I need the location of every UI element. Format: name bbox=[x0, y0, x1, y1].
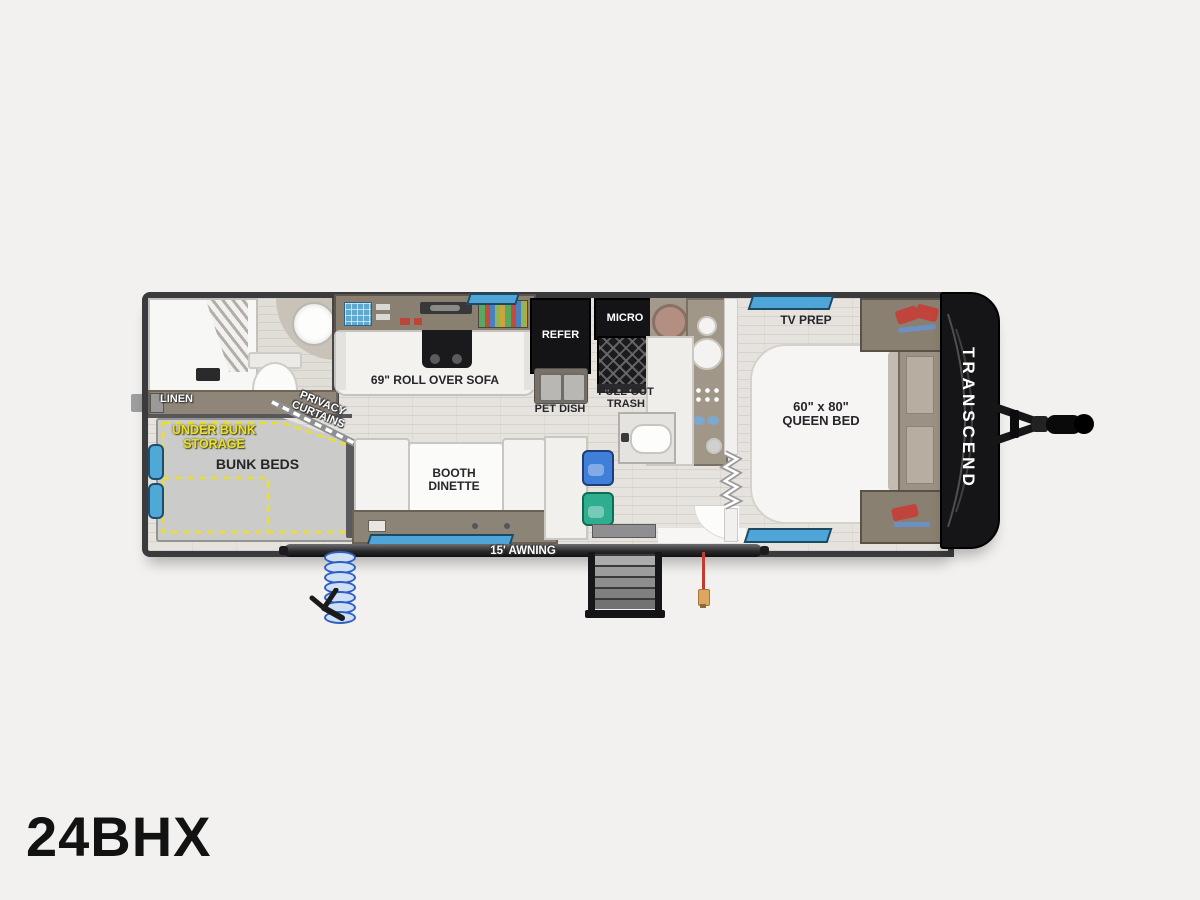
pet-dish bbox=[534, 368, 588, 404]
hose-nozzle bbox=[306, 588, 354, 624]
bunk-beds-label: BUNK BEDS bbox=[200, 457, 315, 472]
booth-dinette-label: BOOTH DINETTE bbox=[410, 467, 498, 493]
micro-label: MICRO bbox=[607, 313, 644, 325]
bunk-ladder bbox=[148, 444, 164, 519]
refrigerator: REFER bbox=[530, 298, 591, 374]
chair-blue bbox=[582, 450, 614, 486]
counter-item-blue bbox=[693, 416, 705, 425]
cup-holder bbox=[452, 354, 462, 364]
sofa-armrest bbox=[336, 332, 346, 390]
cabinet-item-blue bbox=[344, 302, 372, 326]
cabinet-item-red bbox=[414, 318, 422, 325]
shower-fixture bbox=[196, 368, 220, 381]
counter-item-blue bbox=[707, 416, 719, 425]
chair-teal bbox=[582, 492, 614, 526]
power-cord bbox=[702, 552, 705, 590]
step-tread bbox=[595, 576, 655, 587]
model-label: 24BHX bbox=[26, 804, 212, 869]
window-bedroom-top bbox=[748, 295, 835, 310]
entry-steps bbox=[588, 552, 662, 618]
wardrobe-door bbox=[906, 356, 934, 414]
wardrobe-door bbox=[906, 426, 934, 484]
pet-dish-bowl bbox=[562, 373, 586, 402]
dinette-base-detail bbox=[472, 523, 478, 529]
chair-seat bbox=[588, 464, 604, 476]
bedroom-accordion-door bbox=[718, 450, 744, 510]
dinette-base-detail bbox=[504, 523, 510, 529]
chair-seat bbox=[588, 506, 604, 518]
cabinet-item-red bbox=[400, 318, 410, 325]
pillow-blue bbox=[898, 324, 936, 333]
under-bunk-storage-label: UNDER BUNK STORAGE bbox=[158, 424, 270, 451]
pull-out-trash-label: PULL-OUT TRASH bbox=[588, 387, 664, 411]
counter-sink-round bbox=[691, 338, 723, 370]
queen-bed-label: 60" x 80" QUEEN BED bbox=[754, 400, 888, 428]
power-plug-tip bbox=[700, 604, 706, 608]
microwave: MICRO bbox=[594, 298, 656, 340]
dinette-base-detail bbox=[368, 520, 386, 532]
kitchen-faucet bbox=[621, 433, 629, 442]
kitchen-sink bbox=[630, 424, 672, 454]
step-tread bbox=[595, 598, 655, 609]
pet-dish-bowl bbox=[539, 373, 563, 402]
window-kitchen bbox=[466, 293, 520, 305]
bedroom-wall bbox=[724, 508, 738, 542]
floorplan-image: LINEN UNDER BUNK STORAGE BUNK BEDS PRIVA… bbox=[0, 0, 1200, 900]
entry-threshold bbox=[592, 524, 656, 538]
pillow-red bbox=[891, 503, 919, 521]
counter-controls bbox=[694, 386, 720, 404]
tv-prep-label: TV PREP bbox=[756, 314, 856, 327]
sofa-label: 69" ROLL OVER SOFA bbox=[349, 374, 521, 387]
bathroom-sink bbox=[292, 302, 336, 346]
counter-sink-small bbox=[697, 316, 717, 336]
step-tread bbox=[595, 554, 655, 565]
bedroom-cabinet-bottom bbox=[860, 490, 944, 544]
step-tread bbox=[595, 587, 655, 598]
bedroom-wall bbox=[724, 298, 738, 455]
linen-label: LINEN bbox=[160, 394, 210, 406]
step-tread bbox=[595, 565, 655, 576]
refer-label: REFER bbox=[542, 330, 579, 342]
kitchen-island bbox=[544, 436, 588, 540]
bunk-ladder-lower bbox=[148, 483, 164, 519]
cabinet-item bbox=[376, 304, 390, 310]
bedroom-wardrobe bbox=[898, 346, 942, 496]
cabinet-item-tray bbox=[420, 302, 472, 314]
cabinet-item bbox=[376, 314, 390, 320]
window-bedroom-bottom bbox=[744, 528, 833, 543]
step-base bbox=[585, 610, 665, 618]
bedroom-cabinet-top bbox=[860, 298, 944, 352]
pillow-blue bbox=[894, 522, 930, 527]
kitchen-sink-cabinet bbox=[618, 412, 676, 464]
counter-decor bbox=[652, 304, 688, 340]
step-rail bbox=[588, 552, 595, 612]
cup-holder bbox=[430, 354, 440, 364]
sofa-console bbox=[422, 330, 472, 368]
trailer-hitch bbox=[992, 392, 1102, 456]
cabinet-item bbox=[430, 305, 460, 311]
brand-name: TRANSCEND bbox=[940, 292, 996, 545]
step-rail bbox=[655, 552, 662, 612]
pillow-red bbox=[915, 304, 940, 323]
